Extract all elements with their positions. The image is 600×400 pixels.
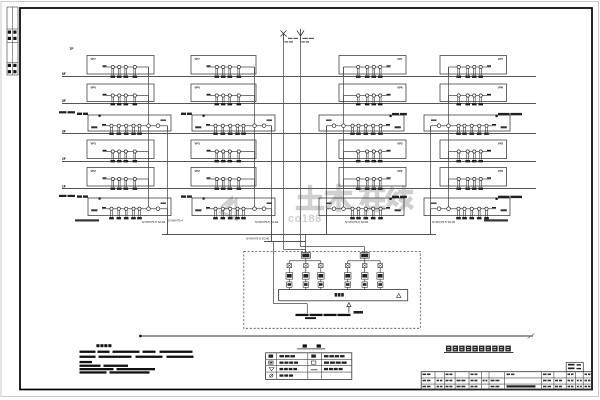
svg-text:VP7: VP7 bbox=[91, 57, 97, 61]
svg-text:VP2: VP2 bbox=[397, 169, 403, 173]
svg-text:VP7: VP7 bbox=[498, 57, 504, 61]
svg-text:VP6: VP6 bbox=[91, 85, 97, 89]
svg-text:5F: 5F bbox=[62, 99, 66, 103]
svg-text:VP3: VP3 bbox=[397, 141, 403, 145]
svg-text:VP7: VP7 bbox=[397, 57, 403, 61]
svg-text:VP2: VP2 bbox=[195, 169, 201, 173]
svg-text:VP3: VP3 bbox=[91, 141, 97, 145]
svg-text:SYWV75-5 SC32: SYWV75-5 SC32 bbox=[345, 220, 369, 224]
svg-text:VP2: VP2 bbox=[91, 169, 97, 173]
svg-text:6F: 6F bbox=[62, 72, 66, 76]
svg-text:VP2: VP2 bbox=[498, 169, 504, 173]
svg-text:SYWV75-5 SC32: SYWV75-5 SC32 bbox=[432, 220, 456, 224]
svg-text:SYWV75-4: SYWV75-4 bbox=[168, 218, 183, 222]
svg-text:2F: 2F bbox=[62, 157, 66, 161]
svg-text:3F: 3F bbox=[62, 130, 66, 134]
svg-text:VP6: VP6 bbox=[498, 85, 504, 89]
svg-text:VP6: VP6 bbox=[195, 85, 201, 89]
svg-text:7F: 7F bbox=[70, 47, 74, 51]
svg-text:VP3: VP3 bbox=[498, 141, 504, 145]
svg-text:VP3: VP3 bbox=[195, 141, 201, 145]
svg-text:1F: 1F bbox=[62, 185, 66, 189]
svg-text:VP6: VP6 bbox=[397, 85, 403, 89]
svg-text:co188: co188 bbox=[288, 213, 322, 225]
svg-text:SYWV75-5 SC32: SYWV75-5 SC32 bbox=[142, 220, 166, 224]
svg-text:SYWV75-5 SC32: SYWV75-5 SC32 bbox=[255, 220, 279, 224]
svg-text:VP7: VP7 bbox=[195, 57, 201, 61]
svg-text:SYWV75-9 SC40: SYWV75-9 SC40 bbox=[246, 237, 270, 241]
